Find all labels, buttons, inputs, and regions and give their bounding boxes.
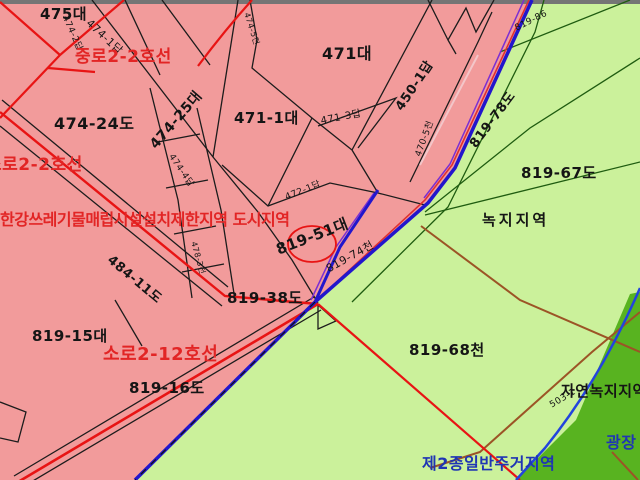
- parcel-label-819-16: 819-16도: [129, 381, 205, 396]
- parcel-label-819-38: 819-38도: [227, 291, 303, 306]
- parcel-label-474-24: 474-24도: [54, 116, 135, 132]
- parcel-label-471-1: 471-1대: [234, 111, 299, 126]
- parcel-label-819-68: 819-68천: [409, 343, 485, 358]
- zone-label-plaza: 광장: [606, 435, 636, 451]
- road-label-soro-2-12: 소로2-12호선: [103, 346, 218, 364]
- road-label-soro-2-2: 소로2-2호선: [0, 157, 83, 174]
- parcel-label-819-15: 819-15대: [32, 329, 108, 344]
- annotation-restriction-zone: 한강쓰레기물매립시설설치제한지역 도시지역: [0, 212, 289, 228]
- map-canvas[interactable]: 475대 474-2답 474-1답 중로2-2호선 474-24도 474-2…: [0, 0, 640, 480]
- zone-label-residential2: 제2종일반주거지역: [422, 456, 555, 472]
- parcel-label-819-67: 819-67도: [521, 166, 597, 181]
- road-label-jungro-2-2: 중로2-2호선: [75, 49, 172, 66]
- parcel-label-471: 471대: [322, 46, 372, 62]
- zone-label-greenbelt: 녹지지역: [482, 213, 549, 228]
